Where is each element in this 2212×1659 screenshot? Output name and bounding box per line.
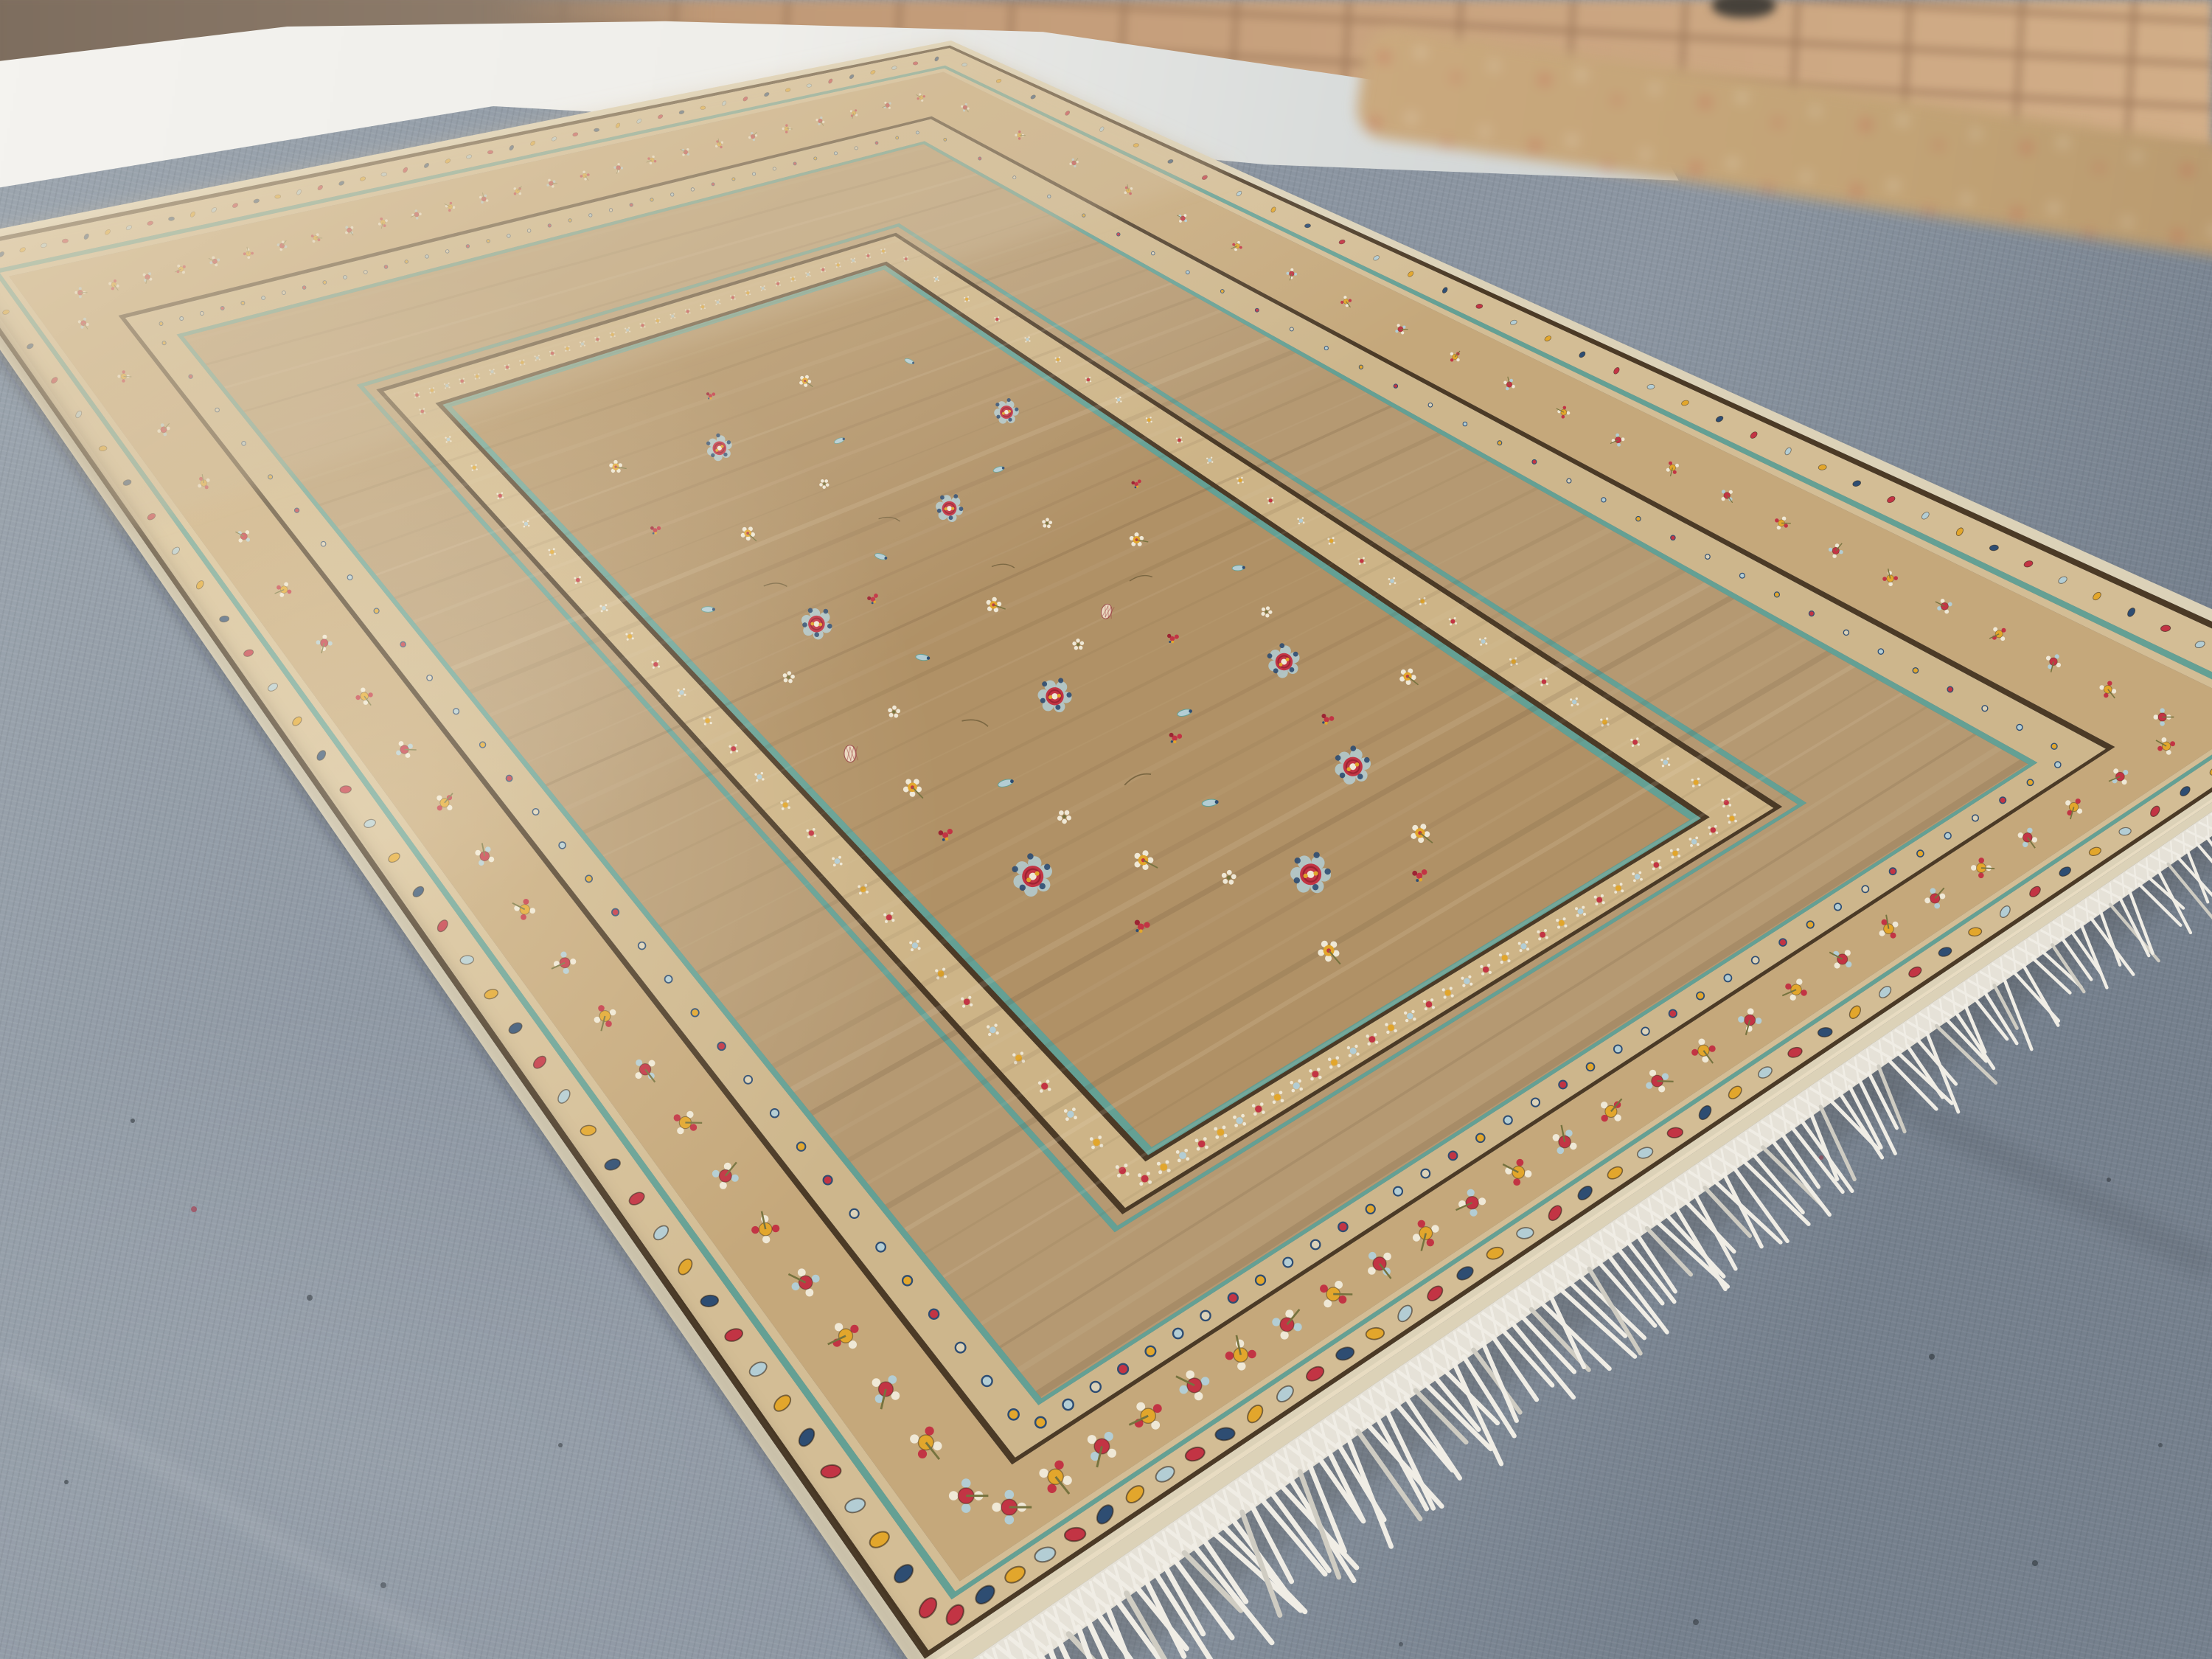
photo-scene: Photograph of a handwoven camel-tan orie… (0, 0, 2212, 1659)
oriental-rug (0, 0, 2212, 1659)
